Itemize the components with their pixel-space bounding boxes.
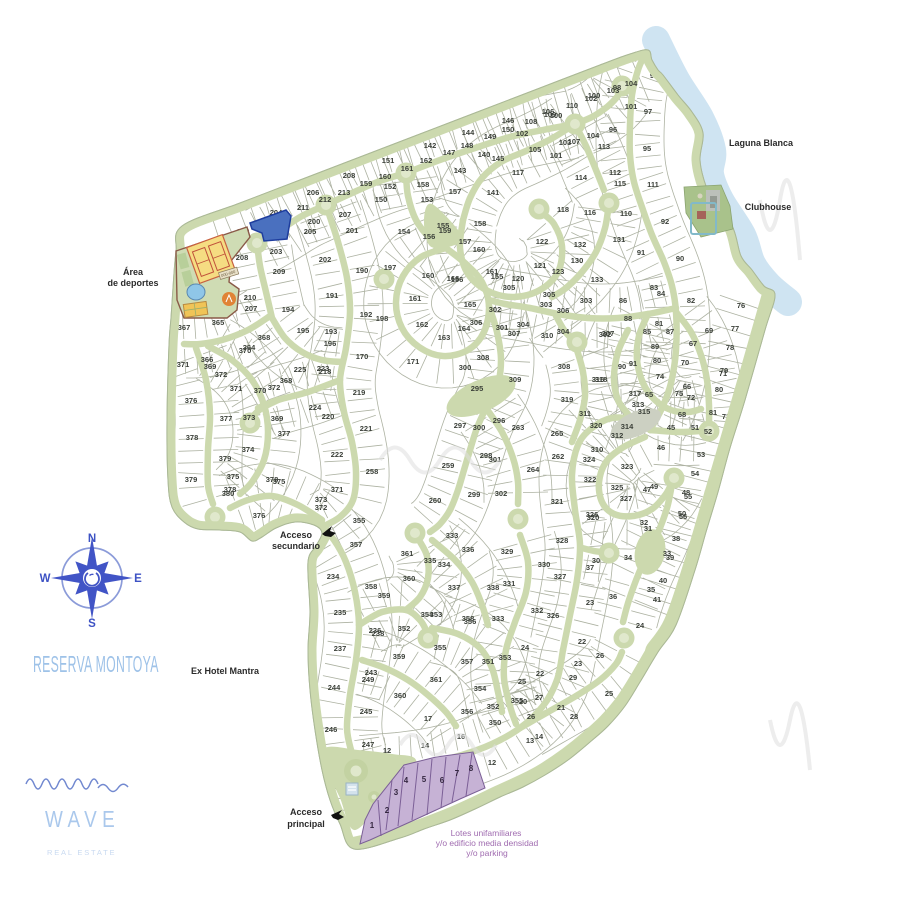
svg-text:352: 352: [398, 624, 411, 633]
svg-text:101: 101: [625, 102, 638, 111]
svg-text:376: 376: [185, 396, 198, 405]
svg-text:357: 357: [461, 657, 474, 666]
svg-text:369: 369: [271, 414, 284, 423]
svg-text:36: 36: [609, 592, 617, 601]
svg-text:354: 354: [474, 684, 487, 693]
svg-text:91: 91: [637, 248, 645, 257]
svg-text:55: 55: [684, 492, 692, 501]
svg-text:208: 208: [236, 253, 249, 262]
svg-text:Laguna Blanca: Laguna Blanca: [729, 138, 794, 148]
svg-text:24: 24: [636, 621, 645, 630]
svg-text:320: 320: [590, 421, 603, 430]
svg-text:163: 163: [438, 333, 451, 342]
svg-text:335: 335: [424, 556, 437, 565]
svg-text:115: 115: [614, 179, 626, 188]
svg-text:22: 22: [578, 637, 586, 646]
svg-text:371: 371: [331, 485, 344, 494]
svg-text:326: 326: [586, 510, 599, 519]
svg-text:207: 207: [245, 304, 258, 313]
svg-text:312: 312: [611, 431, 624, 440]
svg-text:161: 161: [401, 164, 414, 173]
svg-text:205: 205: [304, 227, 317, 236]
svg-text:202: 202: [319, 255, 332, 264]
svg-text:213: 213: [338, 188, 351, 197]
svg-text:118: 118: [557, 205, 569, 214]
svg-text:145: 145: [492, 154, 505, 163]
svg-text:144: 144: [462, 128, 475, 137]
svg-text:358: 358: [462, 614, 475, 623]
svg-text:159: 159: [360, 179, 373, 188]
svg-text:101: 101: [550, 151, 563, 160]
svg-text:53: 53: [697, 450, 705, 459]
svg-text:68: 68: [678, 410, 686, 419]
svg-text:166: 166: [447, 274, 460, 283]
svg-text:296: 296: [493, 416, 506, 425]
svg-text:N: N: [88, 533, 96, 545]
svg-text:75: 75: [675, 389, 683, 398]
svg-text:102: 102: [585, 94, 598, 103]
svg-text:264: 264: [527, 465, 540, 474]
svg-text:317: 317: [629, 389, 642, 398]
svg-text:358: 358: [365, 582, 378, 591]
svg-text:360: 360: [394, 691, 407, 700]
svg-text:38: 38: [672, 534, 680, 543]
svg-text:337: 337: [448, 583, 461, 592]
svg-text:24: 24: [521, 643, 530, 652]
svg-text:221: 221: [360, 424, 373, 433]
svg-text:207: 207: [339, 210, 352, 219]
svg-text:377: 377: [278, 429, 291, 438]
svg-text:120: 120: [512, 274, 525, 283]
svg-text:265: 265: [551, 429, 564, 438]
svg-text:223: 223: [317, 364, 330, 373]
svg-text:310: 310: [591, 445, 604, 454]
svg-text:153: 153: [421, 195, 434, 204]
svg-text:198: 198: [376, 314, 389, 323]
svg-text:157: 157: [459, 237, 472, 246]
svg-text:244: 244: [328, 683, 341, 692]
svg-text:17: 17: [424, 714, 432, 723]
svg-text:208: 208: [343, 171, 356, 180]
svg-text:132: 132: [574, 240, 587, 249]
svg-text:370: 370: [254, 386, 267, 395]
svg-text:321: 321: [551, 497, 564, 506]
svg-text:34: 34: [624, 553, 633, 562]
svg-text:249: 249: [362, 675, 375, 684]
svg-text:322: 322: [584, 475, 597, 484]
svg-text:116: 116: [584, 208, 596, 217]
svg-text:332: 332: [531, 606, 544, 615]
svg-text:Acceso: Acceso: [280, 530, 313, 540]
svg-text:365: 365: [212, 318, 225, 327]
svg-text:Ex Hotel Mantra: Ex Hotel Mantra: [191, 666, 260, 676]
svg-text:318: 318: [595, 375, 608, 384]
svg-text:338: 338: [487, 583, 500, 592]
svg-text:333: 333: [492, 614, 505, 623]
svg-text:102: 102: [516, 129, 529, 138]
svg-text:3: 3: [394, 788, 399, 797]
svg-text:196: 196: [324, 339, 337, 348]
svg-text:210: 210: [244, 293, 257, 302]
svg-text:149: 149: [484, 132, 497, 141]
svg-text:W: W: [40, 573, 51, 585]
svg-text:157: 157: [449, 187, 462, 196]
svg-text:197: 197: [384, 263, 397, 272]
svg-text:354: 354: [421, 610, 434, 619]
svg-text:14: 14: [535, 732, 544, 741]
svg-text:92: 92: [661, 217, 669, 226]
svg-text:103: 103: [607, 86, 620, 95]
svg-text:159: 159: [439, 226, 452, 235]
svg-text:355: 355: [434, 643, 447, 652]
svg-text:104: 104: [625, 79, 638, 88]
svg-text:87: 87: [666, 327, 674, 336]
svg-text:308: 308: [477, 353, 490, 362]
svg-text:70: 70: [681, 358, 689, 367]
svg-text:373: 373: [315, 495, 328, 504]
svg-text:156: 156: [423, 232, 436, 241]
svg-text:32: 32: [640, 518, 648, 527]
svg-text:23: 23: [574, 659, 582, 668]
svg-text:370: 370: [239, 346, 252, 355]
svg-text:13: 13: [526, 736, 534, 745]
svg-text:222: 222: [331, 450, 344, 459]
svg-text:89: 89: [651, 342, 659, 351]
svg-text:39: 39: [666, 553, 674, 562]
svg-text:308: 308: [558, 362, 571, 371]
svg-text:150: 150: [502, 125, 515, 134]
svg-text:378: 378: [186, 433, 199, 442]
svg-text:368: 368: [258, 333, 271, 342]
svg-text:203: 203: [270, 247, 283, 256]
svg-text:225: 225: [294, 365, 307, 374]
svg-text:235: 235: [334, 608, 347, 617]
svg-text:306: 306: [470, 318, 483, 327]
svg-text:148: 148: [461, 141, 474, 150]
svg-text:336: 336: [462, 545, 475, 554]
svg-text:303: 303: [580, 296, 593, 305]
svg-text:23: 23: [586, 598, 594, 607]
svg-text:352: 352: [487, 702, 500, 711]
svg-text:160: 160: [473, 245, 486, 254]
svg-text:80: 80: [653, 356, 661, 365]
svg-text:27: 27: [535, 693, 543, 702]
svg-text:234: 234: [327, 572, 340, 581]
svg-text:110: 110: [620, 209, 632, 218]
svg-text:90: 90: [676, 254, 684, 263]
svg-text:327: 327: [554, 572, 567, 581]
svg-text:378: 378: [266, 475, 279, 484]
svg-text:133: 133: [591, 275, 604, 284]
svg-text:35: 35: [647, 585, 655, 594]
svg-text:WAVE: WAVE: [45, 807, 120, 832]
svg-text:259: 259: [442, 461, 455, 470]
svg-text:82: 82: [687, 296, 695, 305]
svg-text:161: 161: [486, 267, 499, 276]
svg-text:REAL ESTATE: REAL ESTATE: [47, 848, 116, 857]
svg-text:162: 162: [420, 156, 433, 165]
svg-text:26: 26: [596, 651, 604, 660]
svg-text:238: 238: [372, 629, 385, 638]
svg-text:329: 329: [501, 547, 514, 556]
svg-text:357: 357: [350, 540, 363, 549]
svg-text:142: 142: [424, 141, 437, 150]
svg-text:361: 361: [430, 675, 443, 684]
svg-text:330: 330: [538, 560, 551, 569]
svg-text:375: 375: [227, 472, 240, 481]
svg-text:5: 5: [422, 775, 427, 784]
svg-text:95: 95: [643, 144, 651, 153]
svg-text:361: 361: [401, 549, 414, 558]
svg-text:212: 212: [319, 195, 332, 204]
svg-text:379: 379: [185, 475, 198, 484]
svg-text:306: 306: [557, 306, 570, 315]
svg-text:247: 247: [362, 740, 375, 749]
svg-text:305: 305: [543, 290, 556, 299]
svg-text:315: 315: [638, 407, 651, 416]
svg-text:26: 26: [527, 712, 535, 721]
svg-text:333: 333: [446, 531, 459, 540]
svg-text:152: 152: [384, 182, 397, 191]
svg-text:372: 372: [215, 370, 228, 379]
svg-text:209: 209: [273, 267, 286, 276]
svg-text:principal: principal: [287, 819, 325, 829]
svg-text:108: 108: [525, 117, 538, 126]
svg-text:307: 307: [508, 329, 521, 338]
svg-text:377: 377: [220, 414, 233, 423]
svg-text:12: 12: [488, 758, 496, 767]
svg-text:302: 302: [495, 489, 508, 498]
svg-text:8: 8: [469, 764, 474, 773]
svg-text:107: 107: [568, 137, 581, 146]
svg-text:220: 220: [322, 412, 335, 421]
svg-text:45: 45: [667, 423, 675, 432]
svg-text:Área: Área: [123, 267, 144, 277]
svg-text:25: 25: [518, 677, 526, 686]
svg-text:21: 21: [557, 703, 565, 712]
svg-text:67: 67: [689, 339, 697, 348]
svg-text:76: 76: [737, 301, 745, 310]
svg-text:373: 373: [243, 413, 256, 422]
svg-text:295: 295: [471, 384, 484, 393]
svg-text:46: 46: [657, 443, 665, 452]
svg-text:160: 160: [379, 172, 392, 181]
svg-text:146: 146: [502, 116, 515, 125]
svg-text:81: 81: [709, 408, 717, 417]
svg-text:301: 301: [496, 323, 509, 332]
svg-text:51: 51: [691, 423, 699, 432]
svg-text:RESERVA MONTOYA: RESERVA MONTOYA: [33, 651, 159, 677]
svg-text:140: 140: [478, 150, 491, 159]
svg-text:211: 211: [297, 203, 309, 212]
svg-text:360: 360: [403, 574, 416, 583]
svg-text:190: 190: [356, 266, 369, 275]
svg-text:319: 319: [561, 395, 574, 404]
svg-text:165: 165: [464, 300, 477, 309]
svg-text:28: 28: [570, 712, 578, 721]
svg-text:305: 305: [503, 283, 516, 292]
svg-text:359: 359: [393, 652, 406, 661]
svg-text:41: 41: [653, 595, 661, 604]
svg-text:Clubhouse: Clubhouse: [745, 202, 792, 212]
svg-text:260: 260: [429, 496, 442, 505]
svg-text:109: 109: [544, 110, 557, 119]
svg-text:40: 40: [659, 576, 667, 585]
svg-text:2: 2: [385, 806, 390, 815]
svg-text:299: 299: [468, 490, 481, 499]
svg-text:158: 158: [474, 219, 487, 228]
svg-text:328: 328: [556, 536, 569, 545]
svg-text:84: 84: [657, 289, 666, 298]
svg-text:74: 74: [656, 372, 665, 381]
svg-text:355: 355: [353, 516, 366, 525]
svg-text:194: 194: [282, 305, 295, 314]
svg-text:97: 97: [644, 107, 652, 116]
svg-text:353: 353: [499, 653, 512, 662]
svg-text:25: 25: [605, 689, 613, 698]
svg-text:355: 355: [511, 696, 524, 705]
svg-text:206: 206: [307, 188, 320, 197]
svg-text:96: 96: [609, 125, 617, 134]
svg-text:6: 6: [440, 776, 445, 785]
svg-text:379: 379: [219, 454, 232, 463]
svg-text:300: 300: [459, 363, 472, 372]
svg-text:86: 86: [619, 296, 627, 305]
svg-text:350: 350: [489, 718, 502, 727]
svg-text:245: 245: [360, 707, 373, 716]
svg-text:151: 151: [382, 156, 395, 165]
svg-text:246: 246: [325, 725, 338, 734]
svg-text:52: 52: [704, 427, 712, 436]
svg-text:351: 351: [482, 657, 495, 666]
svg-text:307: 307: [602, 329, 615, 338]
svg-text:380: 380: [222, 489, 235, 498]
svg-text:258: 258: [366, 467, 379, 476]
svg-text:191: 191: [326, 291, 339, 300]
svg-text:117: 117: [512, 168, 524, 177]
svg-text:376: 376: [253, 511, 266, 520]
svg-text:y/o parking: y/o parking: [466, 848, 508, 858]
svg-text:314: 314: [621, 422, 634, 431]
svg-text:192: 192: [360, 310, 373, 319]
svg-text:66: 66: [683, 382, 691, 391]
svg-text:112: 112: [609, 168, 621, 177]
svg-text:158: 158: [417, 180, 430, 189]
svg-text:105: 105: [529, 145, 542, 154]
svg-text:327: 327: [620, 494, 633, 503]
svg-text:371: 371: [177, 360, 190, 369]
svg-text:79: 79: [720, 366, 728, 375]
svg-text:4: 4: [404, 776, 409, 785]
svg-text:162: 162: [416, 320, 429, 329]
svg-text:72: 72: [687, 393, 695, 402]
svg-text:262: 262: [552, 452, 565, 461]
svg-text:131: 131: [613, 235, 626, 244]
svg-text:69: 69: [705, 326, 713, 335]
svg-text:85: 85: [643, 327, 651, 336]
svg-text:263: 263: [512, 423, 525, 432]
svg-text:56: 56: [679, 512, 687, 521]
svg-text:237: 237: [334, 644, 347, 653]
svg-text:356: 356: [461, 707, 474, 716]
svg-text:160: 160: [422, 271, 435, 280]
svg-text:368: 368: [280, 376, 293, 385]
svg-text:114: 114: [575, 173, 588, 182]
svg-text:311: 311: [579, 409, 591, 418]
svg-text:372: 372: [315, 503, 328, 512]
svg-text:367: 367: [178, 323, 191, 332]
svg-text:141: 141: [487, 188, 500, 197]
svg-text:80: 80: [715, 385, 723, 394]
svg-text:90: 90: [618, 362, 626, 371]
svg-text:326: 326: [547, 611, 560, 620]
svg-text:de deportes: de deportes: [107, 278, 158, 288]
svg-text:22: 22: [536, 669, 544, 678]
svg-text:77: 77: [731, 324, 739, 333]
svg-text:150: 150: [375, 195, 388, 204]
svg-text:49: 49: [650, 482, 658, 491]
svg-text:170: 170: [356, 352, 369, 361]
svg-text:113: 113: [598, 142, 610, 151]
svg-text:y/o edificio media densidad: y/o edificio media densidad: [436, 838, 539, 848]
svg-text:200: 200: [308, 217, 321, 226]
svg-text:37: 37: [586, 563, 594, 572]
svg-text:371: 371: [230, 384, 243, 393]
svg-text:310: 310: [541, 331, 554, 340]
svg-text:E: E: [134, 573, 142, 585]
svg-text:104: 104: [587, 131, 600, 140]
svg-text:54: 54: [691, 469, 700, 478]
svg-text:224: 224: [309, 403, 322, 412]
svg-text:123: 123: [552, 267, 565, 276]
svg-text:219: 219: [353, 388, 366, 397]
svg-text:302: 302: [489, 305, 502, 314]
svg-text:300: 300: [473, 423, 486, 432]
svg-text:161: 161: [409, 294, 422, 303]
svg-text:65: 65: [645, 390, 653, 399]
svg-text:372: 372: [268, 383, 281, 392]
svg-text:309: 309: [509, 375, 522, 384]
svg-text:359: 359: [378, 591, 391, 600]
svg-text:193: 193: [325, 327, 338, 336]
svg-text:Lotes unifamiliares: Lotes unifamiliares: [451, 828, 522, 838]
svg-text:304: 304: [517, 320, 530, 329]
svg-text:374: 374: [242, 445, 255, 454]
svg-text:324: 324: [583, 455, 596, 464]
svg-text:323: 323: [621, 462, 634, 471]
svg-text:130: 130: [571, 256, 584, 265]
svg-text:S: S: [88, 618, 96, 630]
svg-text:secundario: secundario: [272, 541, 321, 551]
svg-text:297: 297: [454, 421, 467, 430]
svg-text:154: 154: [398, 227, 411, 236]
svg-text:331: 331: [503, 579, 516, 588]
svg-text:195: 195: [297, 326, 310, 335]
svg-text:78: 78: [726, 343, 734, 352]
svg-text:121: 121: [534, 261, 547, 270]
svg-text:81: 81: [655, 319, 663, 328]
svg-text:201: 201: [346, 226, 359, 235]
svg-text:7: 7: [455, 769, 460, 778]
svg-text:111: 111: [647, 180, 659, 189]
svg-text:88: 88: [624, 314, 632, 323]
svg-text:110: 110: [566, 101, 578, 110]
svg-text:1: 1: [370, 821, 375, 830]
svg-text:91: 91: [629, 359, 637, 368]
svg-text:334: 334: [438, 560, 451, 569]
svg-text:147: 147: [443, 148, 456, 157]
svg-text:304: 304: [557, 327, 570, 336]
